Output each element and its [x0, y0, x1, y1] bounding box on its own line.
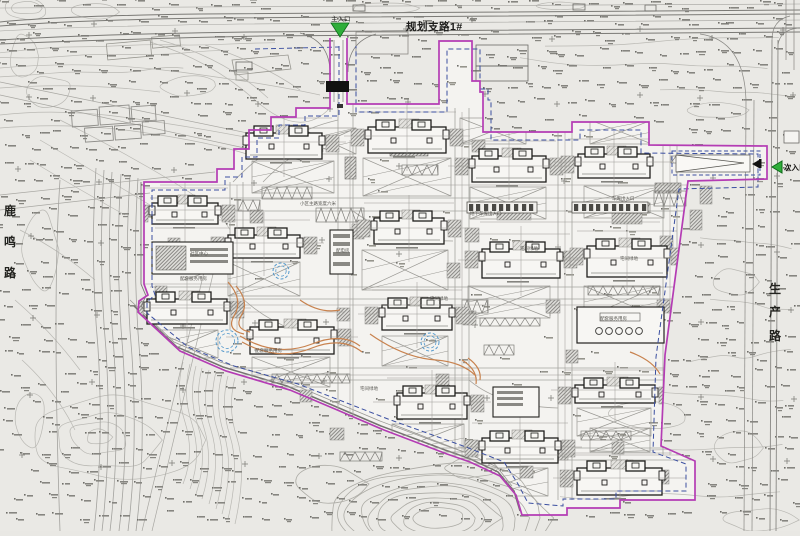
svg-text:配套服务用房: 配套服务用房: [180, 275, 207, 282]
svg-text:规划支路1#: 规划支路1#: [406, 20, 463, 33]
svg-text:生: 生: [769, 281, 781, 296]
svg-text:主入口: 主入口: [331, 14, 351, 23]
svg-text:鸣: 鸣: [4, 234, 16, 249]
svg-text:路: 路: [769, 328, 782, 343]
svg-text:地下车库出入口: 地下车库出入口: [470, 210, 502, 217]
svg-text:配电房: 配电房: [336, 247, 350, 254]
svg-text:次入口: 次入口: [784, 162, 800, 172]
svg-text:宅间绿地: 宅间绿地: [360, 385, 378, 392]
svg-text:路: 路: [4, 265, 17, 280]
svg-text:配套服务用房: 配套服务用房: [600, 315, 627, 322]
svg-text:车库出入口: 车库出入口: [612, 195, 635, 202]
svg-text:宅间绿地: 宅间绿地: [520, 245, 538, 252]
svg-text:配套服务用房: 配套服务用房: [255, 347, 282, 354]
svg-text:小区主路宽度六米: 小区主路宽度六米: [300, 200, 336, 207]
svg-text:宅间绿地: 宅间绿地: [430, 295, 448, 302]
svg-text:宅间绿地: 宅间绿地: [620, 255, 638, 262]
svg-text:鹿: 鹿: [4, 203, 16, 218]
svg-text:社区中心: 社区中心: [190, 250, 208, 257]
svg-text:产: 产: [769, 304, 781, 319]
